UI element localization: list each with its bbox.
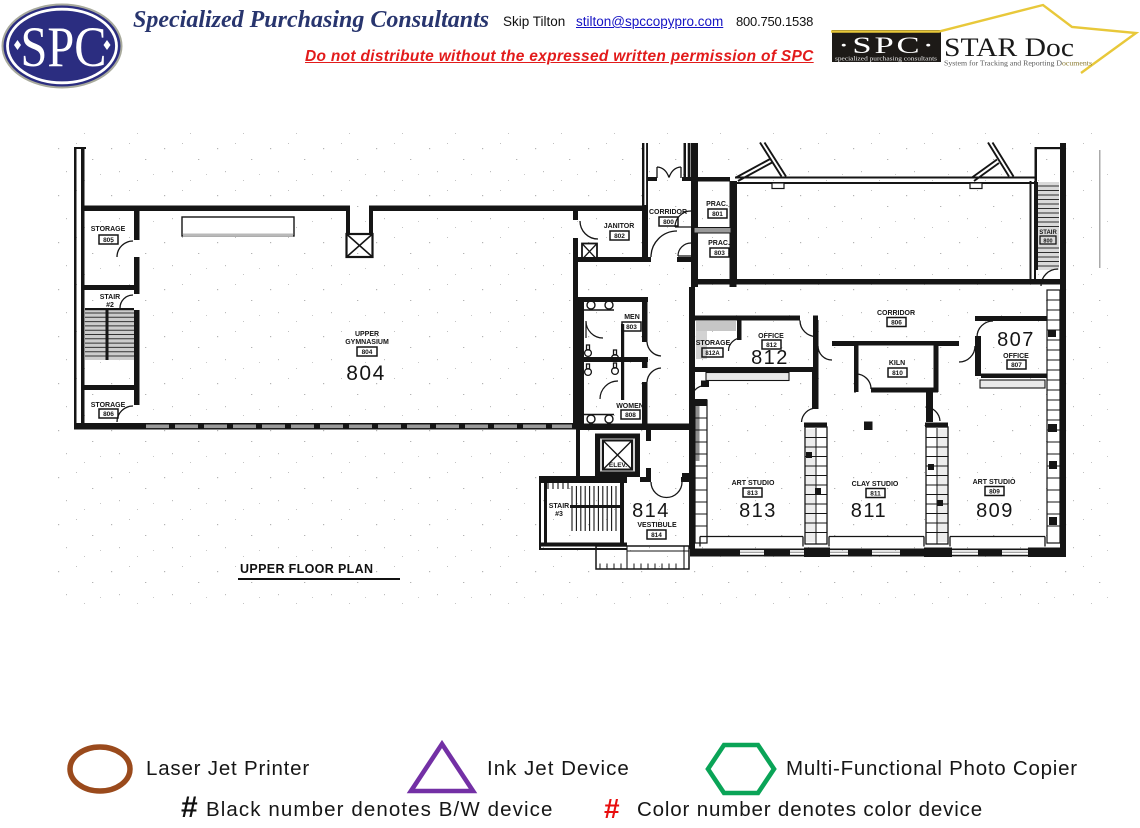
svg-text:PRAC.: PRAC. — [706, 201, 728, 208]
svg-text:811: 811 — [870, 491, 881, 498]
svg-text:STAIR: STAIR — [100, 294, 120, 301]
svg-text:#3: #3 — [555, 511, 563, 518]
svg-text:803: 803 — [714, 250, 725, 257]
svg-text:800: 800 — [1043, 239, 1052, 245]
svg-text:812: 812 — [751, 347, 789, 369]
svg-text:KILN: KILN — [889, 360, 905, 367]
svg-text:803: 803 — [626, 324, 637, 331]
svg-text:808: 808 — [625, 412, 636, 419]
svg-text:804: 804 — [346, 362, 386, 385]
svg-text:806: 806 — [891, 320, 902, 327]
svg-text:805: 805 — [103, 237, 114, 244]
svg-text:CLAY STUDIO: CLAY STUDIO — [852, 481, 899, 488]
svg-text:810: 810 — [892, 370, 903, 377]
svg-text:ELEV.: ELEV. — [609, 462, 627, 469]
svg-text:802: 802 — [614, 233, 625, 240]
svg-text:807: 807 — [997, 329, 1035, 351]
svg-text:#2: #2 — [106, 302, 114, 309]
svg-text:806: 806 — [103, 411, 114, 418]
svg-text:CORRIDOR: CORRIDOR — [877, 310, 915, 317]
svg-text:800: 800 — [663, 219, 674, 226]
svg-text:UPPER: UPPER — [355, 331, 379, 338]
svg-text:813: 813 — [739, 500, 777, 522]
svg-text:STORAGE: STORAGE — [696, 340, 731, 347]
svg-text:WOMEN: WOMEN — [616, 403, 644, 410]
svg-text:PRAC.: PRAC. — [708, 240, 730, 247]
svg-text:809: 809 — [976, 500, 1014, 522]
svg-text:812A: 812A — [705, 351, 720, 357]
svg-text:809: 809 — [989, 489, 1000, 496]
svg-text:813: 813 — [747, 490, 758, 497]
svg-text:GYMNASIUM: GYMNASIUM — [345, 339, 389, 346]
svg-text:814: 814 — [651, 532, 662, 539]
svg-text:ART STUDIO: ART STUDIO — [732, 480, 775, 487]
svg-text:VESTIBULE: VESTIBULE — [637, 522, 677, 529]
svg-text:807: 807 — [1011, 362, 1022, 369]
svg-text:804: 804 — [362, 349, 373, 356]
svg-text:STORAGE: STORAGE — [91, 402, 126, 409]
svg-text:STAIR: STAIR — [549, 503, 569, 510]
svg-text:CORRIDOR: CORRIDOR — [649, 209, 687, 216]
svg-text:MEN: MEN — [624, 314, 640, 321]
svg-text:JANITOR: JANITOR — [604, 223, 635, 230]
svg-text:814: 814 — [632, 500, 670, 522]
svg-text:STAIR: STAIR — [1039, 230, 1057, 236]
svg-text:801: 801 — [712, 211, 723, 218]
svg-text:OFFICE: OFFICE — [1003, 353, 1029, 360]
svg-text:STORAGE: STORAGE — [91, 226, 126, 233]
svg-text:ART STUDIO: ART STUDIO — [973, 479, 1016, 486]
svg-text:811: 811 — [851, 500, 887, 522]
svg-text:OFFICE: OFFICE — [758, 333, 784, 340]
